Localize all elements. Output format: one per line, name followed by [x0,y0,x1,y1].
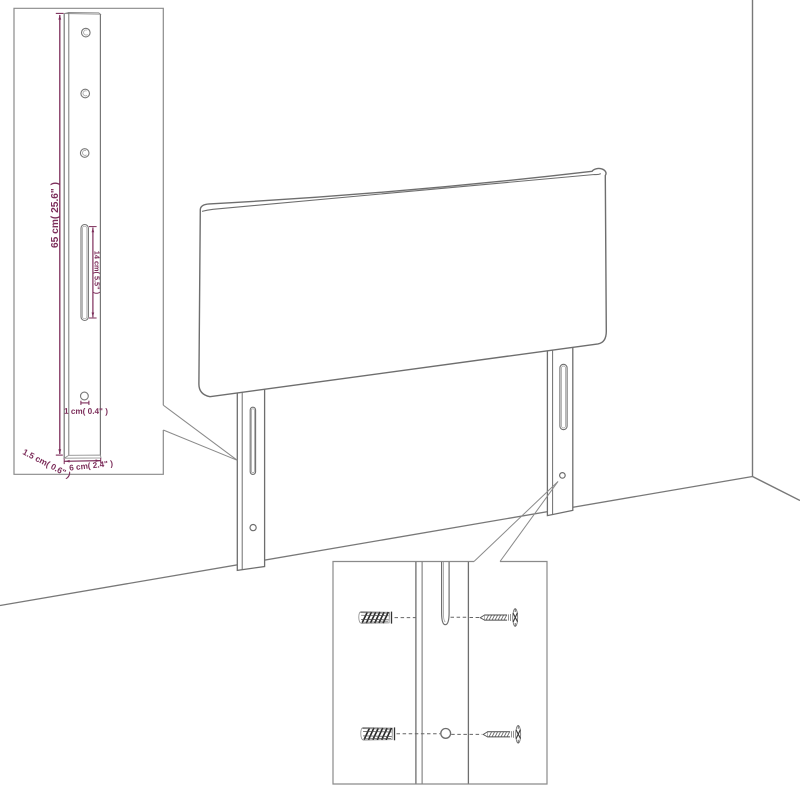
svg-text:65 cm( 25.6" ): 65 cm( 25.6" ) [50,182,61,248]
svg-text:1 cm( 0.4" ): 1 cm( 0.4" ) [64,407,108,416]
svg-text:14 cm( 5.5" ): 14 cm( 5.5" ) [93,251,102,295]
